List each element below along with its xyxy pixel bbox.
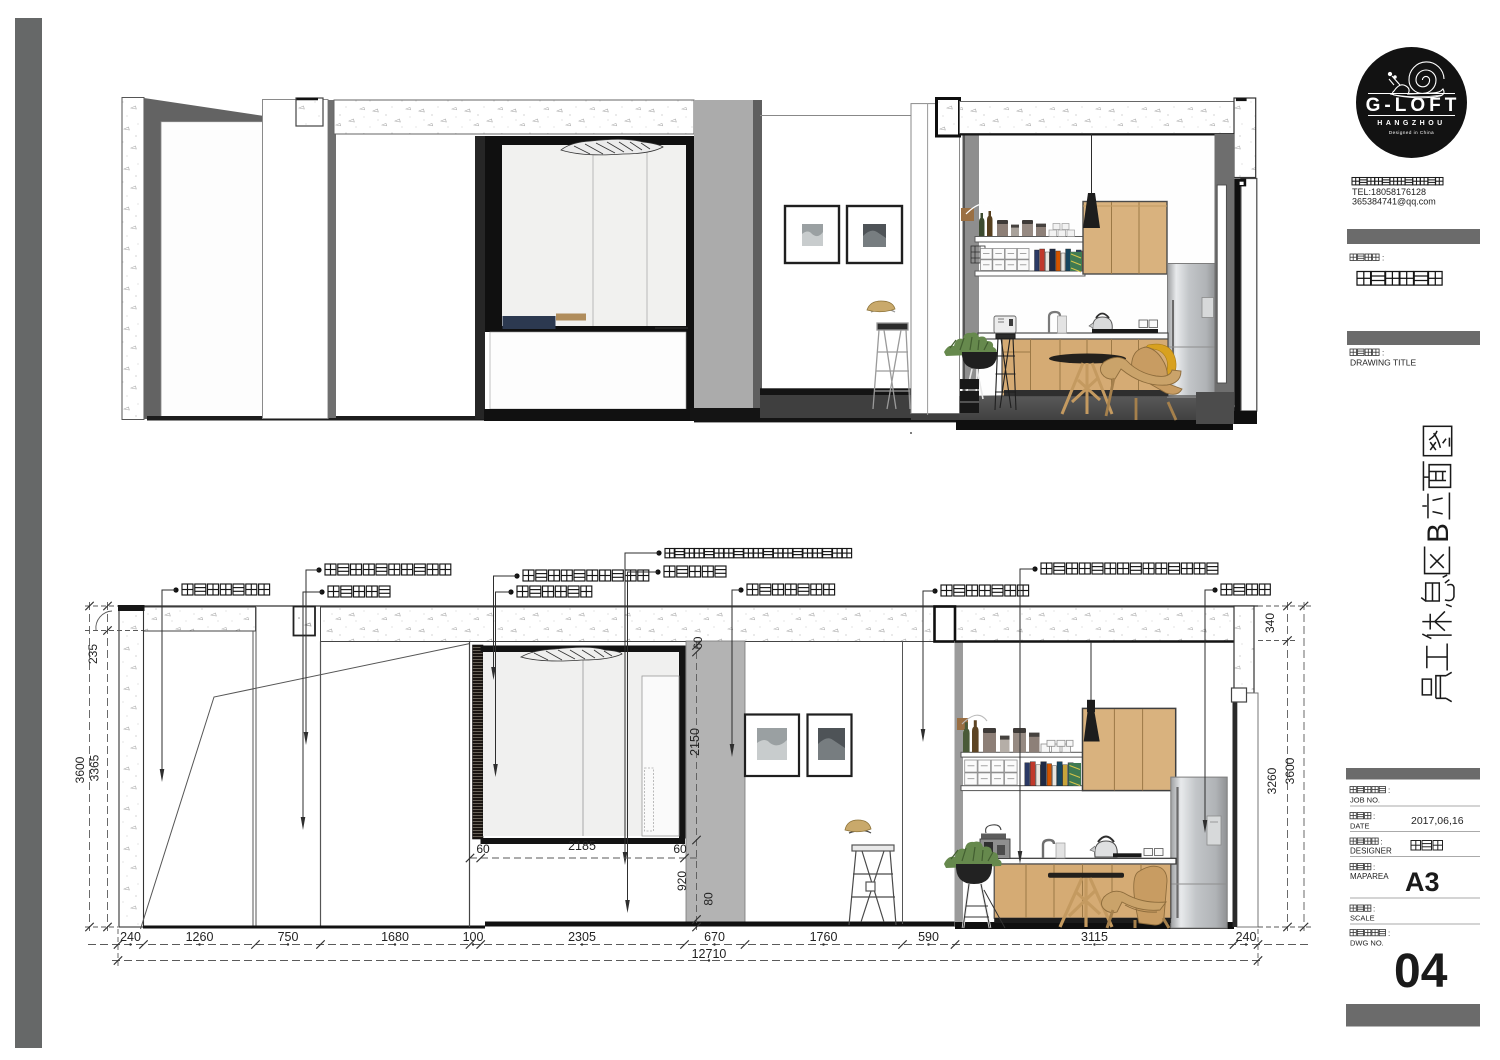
svg-text:DWG NO.: DWG NO. [1350, 939, 1384, 948]
svg-text:80: 80 [702, 892, 716, 906]
svg-text::: : [1388, 786, 1390, 795]
svg-text:MAPAREA: MAPAREA [1350, 872, 1389, 881]
svg-text::: : [1373, 812, 1375, 821]
svg-text:G-LOFT: G-LOFT [1366, 95, 1461, 116]
svg-text:TEL:18058176128: TEL:18058176128 [1352, 187, 1426, 197]
svg-text:DRAWING TITLE: DRAWING TITLE [1350, 358, 1416, 368]
svg-text:365384741@qq.com: 365384741@qq.com [1352, 197, 1436, 207]
svg-text:60: 60 [476, 842, 490, 856]
svg-text:A3: A3 [1405, 867, 1440, 897]
svg-text:JOB NO.: JOB NO. [1350, 796, 1380, 805]
svg-text:12710: 12710 [692, 947, 727, 961]
svg-text:1760: 1760 [810, 930, 838, 944]
svg-text:2185: 2185 [568, 839, 596, 853]
svg-text::: : [1373, 863, 1375, 872]
svg-text:100: 100 [463, 930, 484, 944]
svg-text::: : [1381, 838, 1383, 847]
svg-text::: : [1373, 905, 1375, 914]
svg-text:750: 750 [278, 930, 299, 944]
svg-text:HANGZHOU: HANGZHOU [1377, 120, 1445, 127]
svg-text:2150: 2150 [688, 728, 702, 756]
svg-text:3600: 3600 [1283, 757, 1297, 784]
svg-text:Designed in China: Designed in China [1389, 130, 1434, 135]
svg-text:340: 340 [1263, 613, 1277, 633]
svg-text:240: 240 [120, 930, 141, 944]
svg-text:590: 590 [918, 930, 939, 944]
svg-text:3600: 3600 [73, 756, 87, 783]
svg-text:3365: 3365 [88, 754, 102, 781]
svg-text:235: 235 [86, 644, 100, 664]
svg-text:60: 60 [693, 637, 705, 650]
svg-text:1680: 1680 [381, 930, 409, 944]
svg-text:3115: 3115 [1081, 930, 1108, 944]
svg-text:2017,06,16: 2017,06,16 [1411, 815, 1464, 827]
svg-text:2305: 2305 [568, 930, 596, 944]
svg-text:B: B [1422, 523, 1455, 543]
svg-text:1260: 1260 [186, 930, 214, 944]
svg-text:DATE: DATE [1350, 822, 1369, 831]
svg-text:3260: 3260 [1265, 767, 1279, 794]
svg-text:920: 920 [675, 871, 689, 891]
svg-text:SCALE: SCALE [1350, 914, 1375, 923]
svg-text:670: 670 [704, 930, 725, 944]
svg-text::: : [1382, 349, 1384, 358]
svg-text:DESIGNER: DESIGNER [1350, 847, 1392, 856]
svg-text::: : [1388, 929, 1390, 938]
svg-text::: : [1382, 254, 1384, 263]
svg-text:04: 04 [1394, 945, 1448, 998]
svg-text:240: 240 [1236, 930, 1257, 944]
svg-text:60: 60 [673, 842, 687, 856]
